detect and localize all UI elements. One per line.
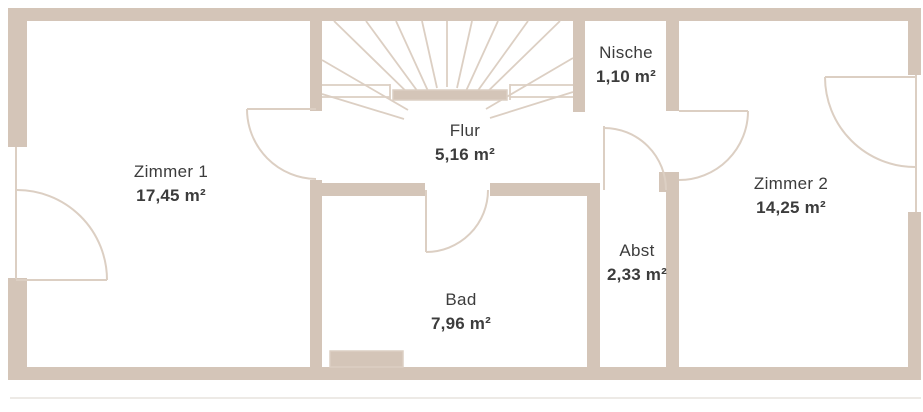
doors [16, 77, 915, 280]
bad-wall-top-left [310, 183, 425, 196]
outer-wall-left-lower [8, 278, 27, 380]
door-abst [604, 126, 666, 190]
walls [8, 8, 921, 380]
stair-wall-left [310, 21, 322, 111]
stair-cut-bar [393, 90, 507, 100]
windows [16, 75, 916, 279]
staircase [322, 21, 573, 119]
floorplan: Zimmer 1 17,45 m² Flur 5,16 m² Nische 1,… [0, 0, 923, 412]
abst-wall-right [666, 192, 679, 367]
door-zimmer1-flur [247, 109, 316, 179]
nische-wall-right [666, 21, 679, 111]
bad-wall-top-right [490, 183, 600, 196]
bad-fixture-block [330, 351, 403, 367]
outer-wall-bottom [8, 367, 921, 380]
door-bad [426, 190, 488, 252]
stair-wall-right [573, 21, 585, 112]
outer-wall-right-upper [908, 8, 921, 75]
outer-wall-top [8, 8, 921, 21]
floorplan-drawing [0, 0, 923, 412]
bad-wall-left [310, 180, 322, 367]
outer-wall-left-upper [8, 8, 27, 147]
outer-wall-right-lower [908, 212, 921, 380]
door-zimmer2-flur [679, 111, 748, 180]
zimmer2-door-stub [659, 172, 679, 192]
bad-abst-wall [587, 183, 600, 367]
stair-treads [322, 21, 573, 119]
door-zimmer1-entry [16, 190, 107, 280]
door-zimmer2-right [825, 77, 915, 167]
